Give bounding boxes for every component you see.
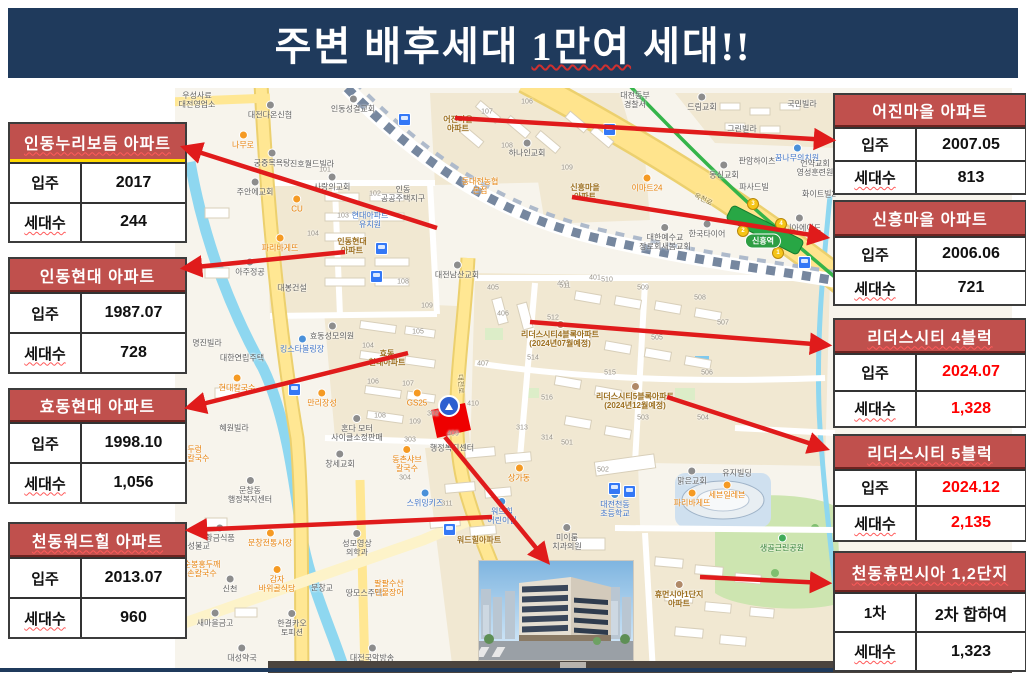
map-label: GS25 (407, 389, 427, 408)
map-label: 현대칼국수 (219, 374, 256, 393)
map-label: 신흥마을 아파트 (570, 183, 599, 201)
slide: 주변 배후세대 1만여 세대!! (0, 0, 1026, 681)
poi-icon (703, 220, 712, 229)
info-table-eojin-maeul: 어진마을 아파트 입주2007.05 세대수813 (833, 93, 1026, 195)
building-number: 515 (604, 369, 616, 378)
map-label: 효동 현대아파트 (369, 349, 406, 367)
map-label: 휴먼시아1단지 아파트 (655, 580, 704, 608)
building-number: 502 (597, 466, 609, 475)
bus-stop-icon (375, 242, 388, 255)
map-label: 팔팔수산 민물장어 (374, 579, 403, 597)
poi-icon (245, 258, 254, 267)
poi-icon (523, 139, 532, 148)
building-number: 512 (547, 314, 559, 323)
table-title: 천동워드힐 아파트 (10, 524, 185, 557)
map-label: 스위밍키즈 (407, 489, 444, 508)
building-number: 401 (589, 274, 601, 283)
map-label: 문창교 (311, 584, 333, 593)
map-label: 나무로 (232, 131, 254, 150)
map-label: 리더스시티5블록아파트 (2024년12월예정) (596, 382, 674, 410)
poi-icon (777, 534, 786, 543)
building-number: 507 (717, 319, 729, 328)
map-label: 명진빌라 (192, 339, 221, 348)
building-number: 108 (501, 142, 513, 151)
info-table-indong-nuribodeum: 인동누리보듬 아파트 입주2017 세대수244 (8, 122, 187, 243)
bus-stop-icon (443, 523, 456, 536)
map-label: 판암하이츠 (739, 157, 776, 166)
map-label: 대전다온신협 (248, 101, 292, 120)
building-number: 108 (374, 412, 386, 421)
poi-icon (327, 322, 336, 331)
map-label: 동촌샤브 칼국수 (392, 445, 421, 473)
map-label: 파리바게뜨 (674, 489, 711, 508)
map-label: 아주정공 (235, 258, 264, 277)
poi-icon (631, 382, 640, 391)
poi-icon (293, 195, 302, 204)
map-label: 창세교회 (325, 450, 354, 469)
map-label: 대봉건설 (277, 284, 306, 293)
building-number: 104 (362, 342, 374, 351)
map-label: 언약교회 영성훈련원 (797, 159, 834, 177)
poi-icon (452, 261, 461, 270)
title-banner: 주변 배후세대 1만여 세대!! (8, 8, 1018, 78)
info-table-leaders-city-5: 리더스시티 5블럭 입주2024.12 세대수2,135 (833, 434, 1026, 542)
map-label: 대전남산교회 (435, 261, 479, 280)
map-label: 유지빌딩 (722, 469, 751, 478)
building-number: 405 (487, 284, 499, 293)
building-number: 516 (541, 394, 553, 403)
map-label: 대성약국 (227, 644, 256, 663)
building-number: 108 (397, 278, 409, 287)
poi-icon (687, 467, 696, 476)
map-label: 행정복지센터 (430, 444, 474, 453)
map-label: 하나인교회 (509, 139, 546, 158)
map-label: 그린빌라 (727, 125, 756, 134)
map-label: 워드힐 어린이집 (487, 497, 516, 525)
poi-icon (353, 414, 362, 423)
map-label: 현대아파트 유치원 (352, 211, 389, 229)
poi-icon (794, 214, 803, 223)
poi-icon (265, 101, 274, 110)
map-label: 미이룸 치과의원 (552, 523, 581, 551)
building-number: 109 (421, 302, 433, 311)
map-label: 성모영상 의학과 (342, 529, 371, 557)
building-number: 514 (527, 354, 539, 363)
poi-icon (268, 149, 277, 158)
map-label: 동신교회 (709, 161, 738, 180)
poi-icon (335, 450, 344, 459)
poi-icon (674, 580, 683, 589)
building-number: 109 (409, 418, 421, 427)
building-number: 501 (561, 439, 573, 448)
map-label: 우성사료 대전영업소 (179, 91, 216, 109)
map-label: 대한예수교 장로회새봄교회 (639, 223, 691, 251)
map-label: 순봉홍두깨 손칼국수 (184, 560, 221, 578)
bus-stop-icon (288, 383, 301, 396)
poi-icon (688, 489, 697, 498)
building-number: 407 (477, 360, 489, 369)
building-rendering-image (479, 561, 633, 660)
poi-icon (792, 144, 801, 153)
building-number: 302 (427, 410, 439, 419)
table-title: 리더스시티 4블럭 (835, 320, 1025, 353)
map-label: 주안에교회 (237, 178, 274, 197)
building-number: 313 (516, 424, 528, 433)
map-label: 파리바게뜨 (262, 234, 299, 253)
poi-icon (497, 497, 506, 506)
poi-icon (297, 335, 306, 344)
poi-icon (661, 223, 670, 232)
building-number: 107 (402, 380, 414, 389)
map-label: 세븐일레븐 (709, 481, 746, 500)
poi-icon (265, 529, 274, 538)
map-label: 대전국악방송 (350, 644, 394, 663)
building-number: 410 (467, 400, 479, 409)
bus-stop-icon (798, 256, 811, 269)
table-title: 인동현대 아파트 (10, 259, 185, 292)
map-label: 대전로 (455, 374, 465, 394)
building-number: 409 (447, 430, 459, 439)
page-title: 주변 배후세대 1만여 세대!! (275, 14, 752, 72)
station-exit-icon: 3 (747, 198, 759, 210)
map-label: 문창전통시장 (248, 529, 292, 548)
map-label: 인동성결교회 (331, 95, 375, 114)
poi-icon (245, 476, 254, 485)
poi-icon (215, 524, 224, 533)
bus-stop-icon (370, 270, 383, 283)
poi-icon (239, 131, 248, 140)
map-label: 이마트24 (632, 174, 663, 193)
map-label: 국민빌라 (787, 100, 816, 109)
building-number: 406 (497, 310, 509, 319)
bus-stop-icon (398, 113, 411, 126)
map-label: CU (291, 195, 303, 214)
poi-icon (352, 529, 361, 538)
map-label: 파사드빌 (739, 183, 768, 192)
poi-icon (233, 374, 242, 383)
poi-icon (642, 174, 651, 183)
map-label: 생골근린공원 (760, 534, 804, 553)
map-label: 동대전농협 본점 (462, 177, 499, 195)
building-number: 311 (441, 500, 452, 509)
info-table-cheondong-wordhill: 천동워드힐 아파트 입주2013.07 세대수960 (8, 522, 187, 639)
poi-icon (276, 234, 285, 243)
poi-icon (287, 609, 296, 618)
building-number: 504 (697, 414, 709, 423)
info-table-indong-hyundai: 인동현대 아파트 입주1987.07 세대수728 (8, 257, 187, 374)
building-number: 107 (481, 108, 493, 117)
station-exit-icon: 1 (772, 247, 784, 259)
poi-icon (317, 389, 326, 398)
info-table-leaders-city-4: 리더스시티 4블럭 입주2024.07 세대수1,328 (833, 318, 1026, 428)
map-label: 킹스타볼링장 (280, 335, 324, 354)
poi-icon (562, 523, 571, 532)
map-label: 만리장성 (307, 389, 336, 408)
info-table-hyodong-hyundai: 효동현대 아파트 입주1998.10 세대수1,056 (8, 388, 187, 504)
poi-icon (273, 565, 282, 574)
building-number: 511 (559, 282, 570, 291)
station-badge: 신흥역 (745, 234, 781, 249)
bus-stop-icon (623, 485, 636, 498)
building-number: 508 (694, 294, 706, 303)
building-number: 304 (399, 474, 411, 483)
building-number: 314 (541, 434, 553, 443)
map-label: 한국타이어 (689, 220, 726, 239)
building-number: 105 (412, 328, 424, 337)
table-title: 어진마을 아파트 (835, 95, 1025, 127)
map-label: 인동 공공주택지구 (381, 185, 425, 203)
map-label: 인동현대 아파트 (337, 237, 366, 255)
map-label: 워드힐아파트 (457, 536, 501, 545)
map-label: 대전동부 경찰서 (620, 91, 649, 109)
poi-icon (251, 178, 260, 187)
poi-icon (515, 464, 524, 473)
poi-icon (211, 609, 220, 618)
map-label: 드림교회 (687, 93, 716, 112)
map-label: 상가동 (508, 464, 530, 483)
map-label: 어진마을 아파트 (443, 115, 472, 133)
info-table-cheondong-humansia: 천동휴먼시아 1,2단지 1차2차 합하여 세대수1,323 (833, 551, 1026, 672)
table-title: 리더스시티 5블럭 (835, 436, 1025, 469)
building-number: 506 (701, 369, 713, 378)
table-title: 효동현대 아파트 (10, 390, 185, 422)
poi-icon (719, 161, 728, 170)
building-number: 106 (521, 98, 533, 107)
building-number: 503 (637, 414, 649, 423)
building-number: 509 (637, 284, 649, 293)
building-number: 106 (367, 378, 379, 387)
building-number: 104 (307, 230, 319, 239)
poi-icon (367, 644, 376, 653)
building-number: 510 (601, 276, 613, 285)
poi-icon (697, 93, 706, 102)
poi-icon (413, 389, 422, 398)
transit-marker-icon (438, 395, 460, 417)
map-label: 궁중목욕탕 (254, 149, 291, 168)
table-title: 인동누리보듬 아파트 (10, 124, 185, 162)
bus-stop-icon (603, 123, 616, 136)
map-label: 한결카오 토피션 (277, 609, 306, 637)
bus-stop-icon (608, 482, 621, 495)
map-label: 화이트빌2 (802, 190, 836, 199)
map-label: 감자 바위골식당 (259, 565, 296, 593)
map-label: 새마을금고 (197, 609, 234, 628)
poi-icon (723, 481, 732, 490)
map-label: 황금식품 (205, 524, 234, 543)
poi-icon (237, 644, 246, 653)
map-label: 사랑의교회 (314, 173, 351, 192)
info-table-shinheung-maeul: 신흥마을 아파트 입주2006.06 세대수721 (833, 200, 1026, 306)
map-label: 맑은교회 (677, 467, 706, 486)
poi-icon (225, 575, 234, 584)
building-number: 102 (369, 190, 381, 199)
map-label: 대한연립주택 (220, 354, 264, 363)
table-title: 천동휴먼시아 1,2단지 (835, 553, 1025, 592)
map-label: 혜원빌라 (219, 424, 248, 433)
building-number: 101 (319, 166, 331, 175)
poi-icon (402, 445, 411, 454)
poi-icon (348, 95, 357, 104)
poi-icon (421, 489, 430, 498)
station-exit-icon: 4 (775, 218, 787, 230)
building-number: 505 (651, 334, 663, 343)
table-title: 신흥마을 아파트 (835, 202, 1025, 236)
map-label: 리더스시티4블록아파트 (2024년07월예정) (521, 320, 599, 348)
building-number: 103 (337, 212, 349, 221)
map-label: 신천 (223, 575, 238, 594)
building-number: 303 (404, 436, 416, 445)
building-number: 109 (561, 164, 573, 173)
map-label: 문창동 행정복지센터 (228, 476, 272, 504)
